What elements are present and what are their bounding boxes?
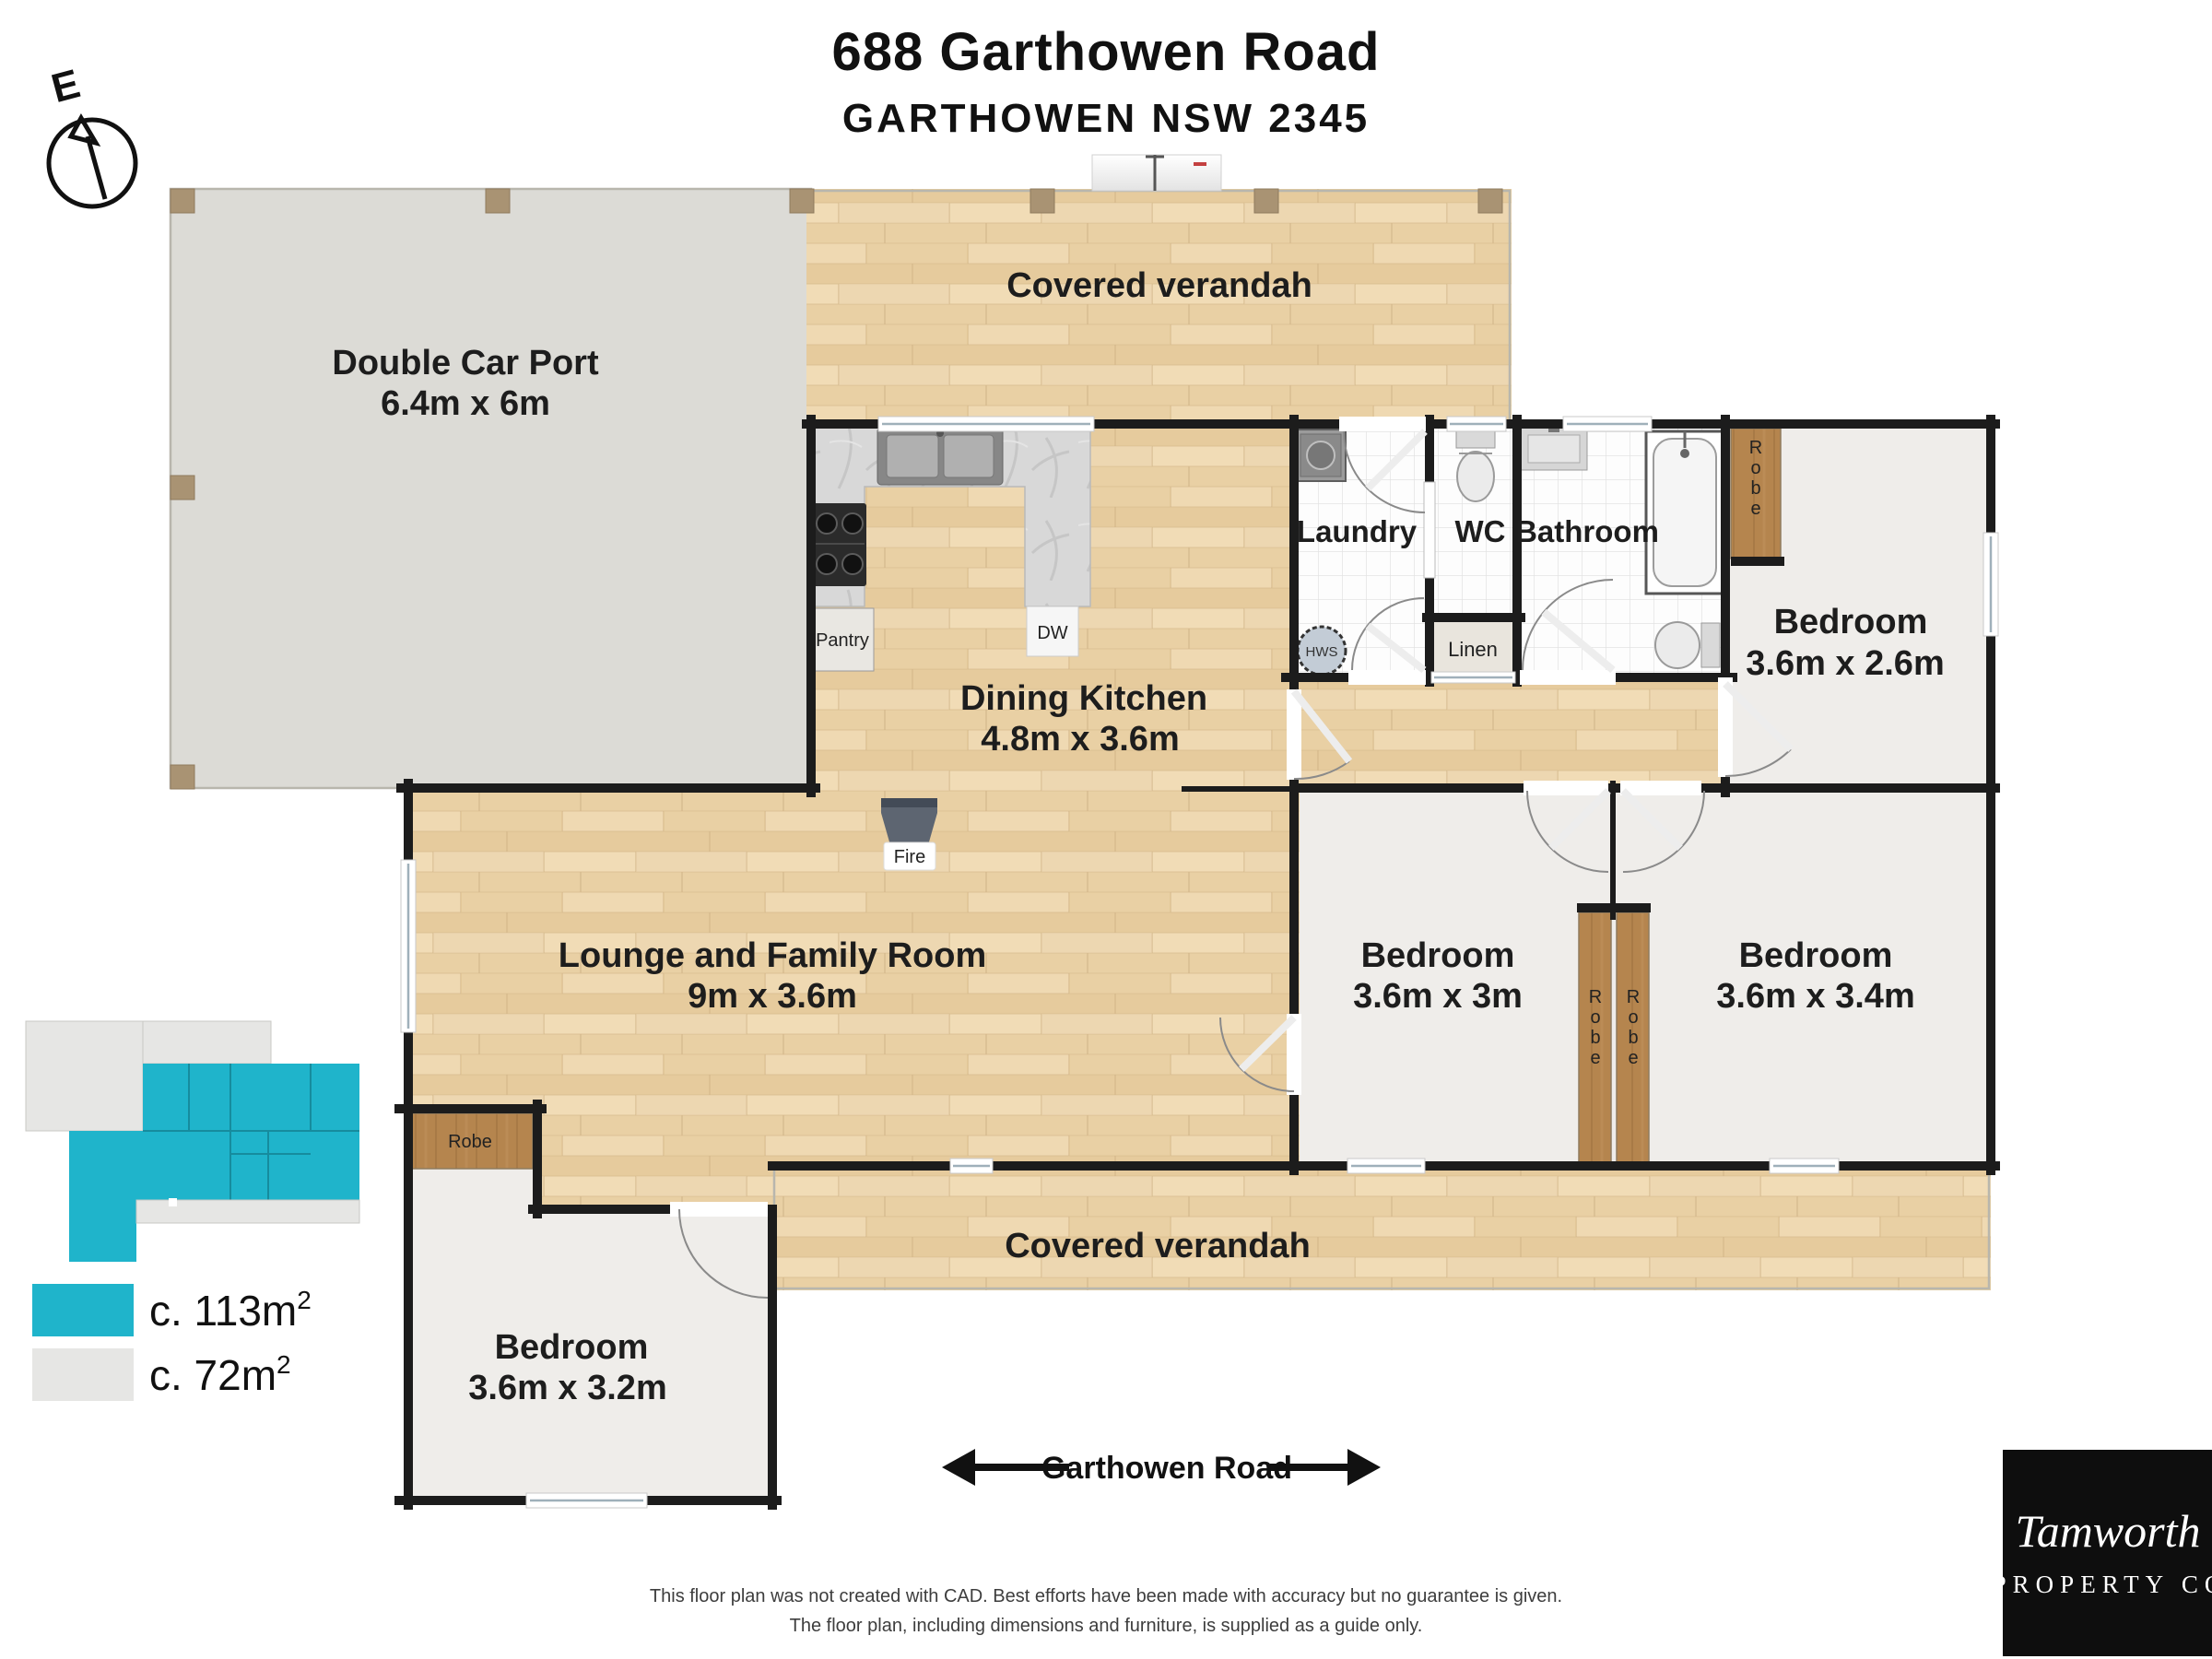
disclaimer-line1: This floor plan was not created with CAD…: [650, 1586, 1562, 1606]
stove-cooktop: [812, 503, 866, 586]
bedroom-ne-dims: 3.6m x 2.6m: [1746, 644, 1944, 683]
carport-floor: [171, 189, 811, 788]
lounge-dims: 9m x 3.6m: [688, 977, 857, 1016]
dining-kitchen-name: Dining Kitchen: [960, 679, 1207, 718]
bedroom-ne-name: Bedroom: [1774, 603, 1928, 641]
dishwasher: DW: [1027, 606, 1078, 656]
floorplan-canvas: Pantry DW Fire HWS: [0, 0, 2212, 1659]
bedroom-s1-name: Bedroom: [1361, 936, 1515, 975]
bedroom-s1-dims: 3.6m x 3m: [1353, 977, 1523, 1016]
pantry-label: Pantry: [816, 630, 869, 651]
washing-machine: [1296, 429, 1346, 481]
disclaimer-line2: The floor plan, including dimensions and…: [790, 1616, 1423, 1636]
verandah-bottom-label: Covered verandah: [1005, 1227, 1311, 1265]
laundry-label: Laundry: [1297, 514, 1418, 548]
logo-script-text: Tamworth: [2015, 1505, 2200, 1557]
pantry: Pantry: [812, 608, 874, 671]
wc-sliding-door: [1424, 482, 1435, 578]
road: Garthowen Road: [942, 1449, 1381, 1486]
entry-step: [1092, 155, 1221, 191]
wc-label: WC: [1455, 514, 1506, 548]
page-subtitle: GARTHOWEN NSW 2345: [842, 96, 1370, 141]
hot-water-system: HWS: [1298, 627, 1346, 675]
window-bathroom: [1563, 417, 1652, 431]
robe-s1-label: Robe: [1589, 987, 1602, 1068]
floorplan-page: Pantry DW Fire HWS: [0, 0, 2212, 1659]
legend-swatch-other: [32, 1348, 134, 1401]
bedroom-s2-dims: 3.6m x 3.4m: [1716, 977, 1914, 1016]
verandah-bottom-floor: [772, 1166, 1991, 1290]
compass-label: E: [47, 61, 85, 112]
kitchen-sink: [877, 428, 1003, 485]
road-label: Garthowen Road: [1041, 1451, 1292, 1486]
hallway-floor: [1294, 677, 1730, 793]
hws-label: HWS: [1306, 644, 1338, 660]
window-wc: [1447, 417, 1506, 431]
wc-fixtures: [1456, 429, 1495, 501]
legend-other-label: c. 72m2: [149, 1350, 291, 1399]
bedroom-sw-name: Bedroom: [495, 1328, 649, 1367]
window-bedroom-s1: [1347, 1159, 1425, 1173]
legend: c. 113m2 c. 72m2: [32, 1284, 312, 1401]
lounge-name: Lounge and Family Room: [559, 936, 986, 975]
window-bedroom-s2: [1770, 1159, 1839, 1173]
window-lounge: [401, 860, 416, 1032]
fireplace: Fire: [881, 798, 937, 870]
compass: E: [47, 61, 135, 206]
agency-logo: Tamworth PROPERTY CO: [1993, 1450, 2212, 1656]
carport-dims: 6.4m x 6m: [381, 384, 550, 423]
robe-ne-label: Robe: [1749, 438, 1762, 519]
logo-caps-text: PROPERTY CO: [1993, 1571, 2212, 1598]
dishwasher-label: DW: [1037, 623, 1067, 643]
bathroom-label: Bathroom: [1515, 514, 1659, 548]
carport-name: Double Car Port: [332, 344, 599, 382]
dining-kitchen-dims: 4.8m x 3.6m: [981, 720, 1179, 759]
bedroom-sw-dims: 3.6m x 3.2m: [468, 1369, 666, 1407]
road-arrow-right-icon: [1347, 1449, 1381, 1486]
robe-sw-label: Robe: [448, 1132, 492, 1152]
legend-living-label: c. 113m2: [149, 1286, 312, 1335]
bedroom-s2-name: Bedroom: [1739, 936, 1893, 975]
toilet: [1655, 622, 1720, 668]
window-kitchen: [878, 417, 1094, 431]
road-arrow-left-icon: [942, 1449, 975, 1486]
fire-label: Fire: [894, 847, 925, 867]
robe-s2-label: Robe: [1627, 987, 1640, 1068]
linen-label: Linen: [1448, 638, 1498, 661]
disclaimer: This floor plan was not created with CAD…: [650, 1586, 1562, 1636]
minimap: [26, 1021, 359, 1262]
window-bedroom-ne: [1983, 533, 1998, 636]
bathtub: [1646, 431, 1724, 594]
header: 688 Garthowen Road GARTHOWEN NSW 2345: [832, 22, 1381, 141]
verandah-top-label: Covered verandah: [1006, 266, 1312, 305]
window-bedroom-sw: [526, 1493, 647, 1508]
page-title: 688 Garthowen Road: [832, 22, 1381, 82]
legend-swatch-living: [32, 1284, 134, 1336]
